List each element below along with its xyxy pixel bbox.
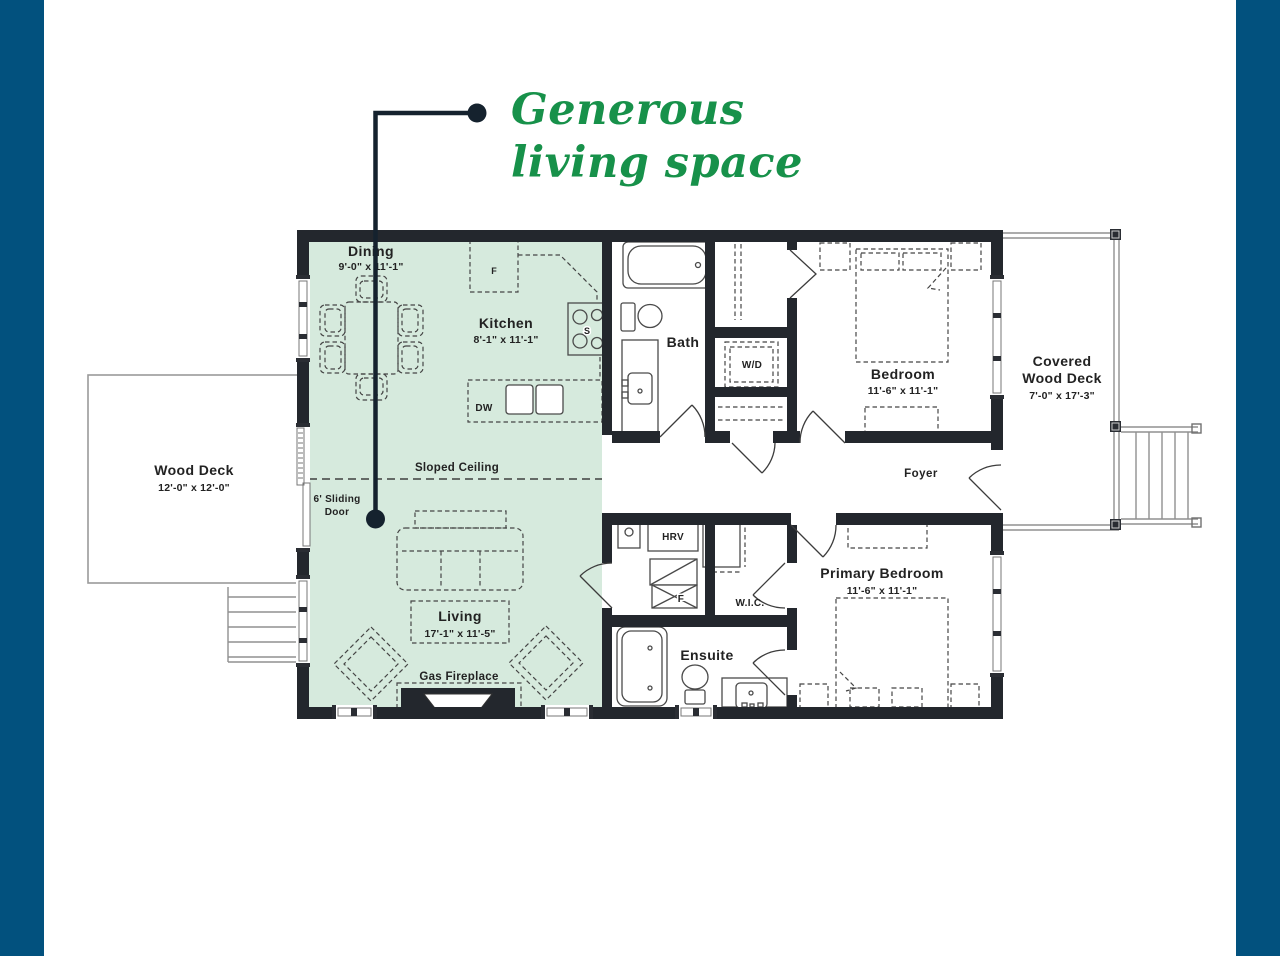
bath-door <box>660 405 705 437</box>
sliding-door <box>296 423 310 552</box>
window-ensuite <box>675 705 717 719</box>
deck-stairs-left <box>228 587 297 662</box>
bedroom-bed <box>856 249 948 362</box>
dining-dims: 9'-0" x 11'-1" <box>338 261 403 273</box>
bath-vanity <box>622 340 658 433</box>
wood-deck-label: Wood Deck <box>154 462 234 478</box>
deck-stairs-right <box>1121 424 1201 527</box>
covered-deck-label2: Wood Deck <box>1022 370 1102 386</box>
bedroom-door <box>800 411 845 443</box>
living-label: Living <box>438 608 482 624</box>
front-door <box>969 465 1001 510</box>
window-living-bottom2 <box>541 705 593 719</box>
sliding-door-label2: Door <box>325 507 350 518</box>
sloped-ceiling-label: Sloped Ceiling <box>415 462 499 474</box>
window-dining <box>296 275 310 362</box>
floor-plan: Dining 9'-0" x 11'-1" Kitchen 8'-1" x 11… <box>0 0 1280 956</box>
window-living-bottom1 <box>332 705 377 719</box>
bedroom-dims: 11'-6" x 11'-1" <box>868 385 939 397</box>
primary-door <box>791 525 836 557</box>
bath-tub <box>623 242 711 288</box>
dishwasher-label: DW <box>475 403 493 414</box>
furnace-label: F <box>678 594 684 605</box>
primary-nightstand-left <box>800 684 828 710</box>
window-primary <box>990 551 1004 677</box>
kitchen-label: Kitchen <box>479 315 533 331</box>
furnace <box>650 559 697 608</box>
wood-deck <box>88 375 300 583</box>
ensuite-vanity <box>722 678 787 708</box>
ensuite-shower <box>617 627 667 706</box>
window-bedroom <box>990 275 1004 399</box>
dining-label: Dining <box>348 243 394 259</box>
primary-dims: 11'-6" x 11'-1" <box>847 585 918 597</box>
linen-shelves <box>718 407 784 420</box>
primary-nightstand-right <box>951 684 979 710</box>
ensuite-toilet <box>682 665 708 704</box>
foyer-label: Foyer <box>904 468 938 480</box>
fridge-label: F <box>491 266 497 276</box>
covered-deck-dims: 7'-0" x 17'-3" <box>1029 390 1095 402</box>
primary-label: Primary Bedroom <box>820 565 943 581</box>
wood-deck-dims: 12'-0" x 12'-0" <box>158 482 230 494</box>
hall-closet-lines <box>735 244 741 320</box>
wd-door <box>732 443 775 473</box>
bedroom-nightstand-right <box>951 243 981 270</box>
window-living-left <box>296 575 310 667</box>
wic-label: W.I.C. <box>735 598 764 609</box>
bedroom-closet-bifold <box>790 250 816 298</box>
callout-dot-text <box>468 104 487 123</box>
kitchen-dims: 8'-1" x 11'-1" <box>473 334 538 346</box>
bedroom-label: Bedroom <box>871 366 935 382</box>
primary-bed <box>836 598 948 710</box>
gas-fireplace-label: Gas Fireplace <box>419 671 498 683</box>
hrv-label: HRV <box>662 532 684 543</box>
bath-toilet <box>621 303 662 331</box>
wd-label: W/D <box>742 360 762 371</box>
ensuite-label: Ensuite <box>680 647 733 663</box>
stove-label: S <box>584 326 590 336</box>
covered-deck-label1: Covered <box>1033 353 1092 369</box>
bath-label: Bath <box>667 334 700 350</box>
bedroom-nightstand-left <box>820 243 850 270</box>
living-dims: 17'-1" x 11'-5" <box>424 628 495 640</box>
sliding-door-label1: 6' Sliding <box>313 494 360 505</box>
callout-dot-plan <box>366 510 385 529</box>
